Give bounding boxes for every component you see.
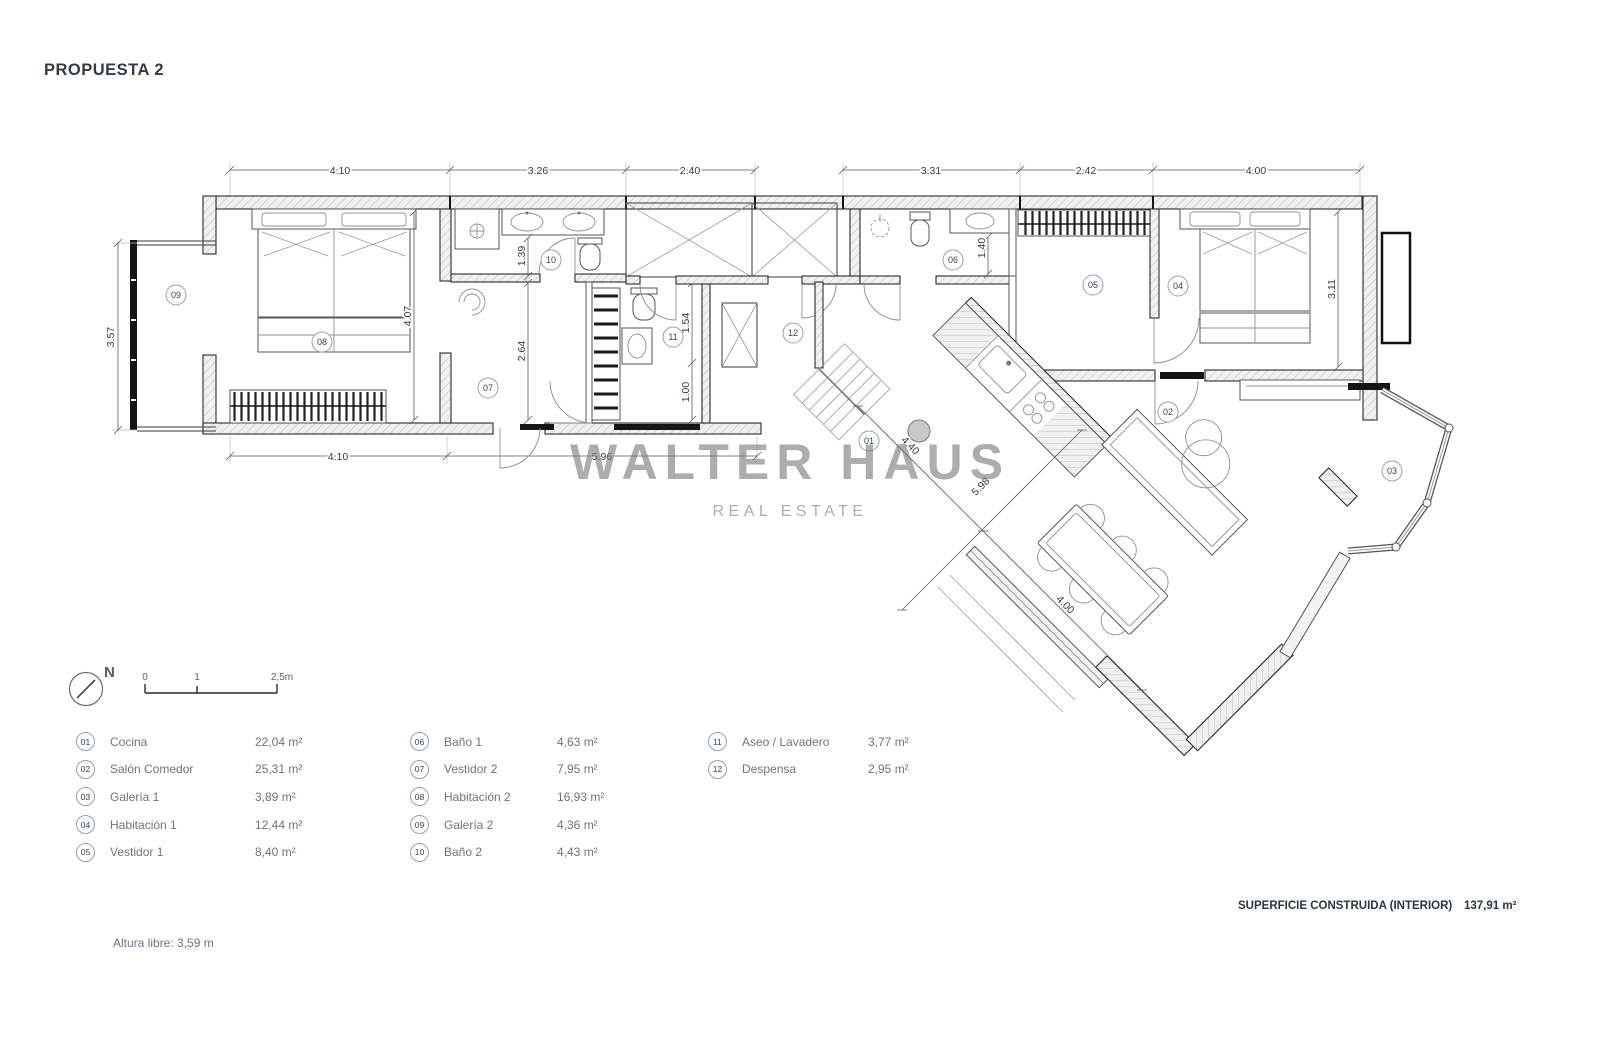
legend-row: 03Galería 13,89 m² bbox=[76, 783, 386, 811]
room-number-badge: 09 bbox=[410, 815, 429, 834]
label-aseo: 11 bbox=[668, 332, 677, 342]
ceiling-height-note: Altura libre: 3,59 m bbox=[113, 936, 214, 950]
label-cocina: 01 bbox=[864, 436, 874, 446]
legend-row: 12Despensa2,95 m² bbox=[708, 756, 998, 784]
room-name: Galería 2 bbox=[444, 818, 493, 832]
legend-column-3: 11Aseo / Lavadero3,77 m² 12Despensa2,95 … bbox=[708, 728, 998, 783]
page-title: PROPUESTA 2 bbox=[44, 61, 164, 80]
dim-top-3: 2.40 bbox=[680, 165, 701, 177]
label-despensa: 12 bbox=[788, 328, 798, 338]
room-name: Vestidor 1 bbox=[110, 845, 163, 859]
room-number-badge: 05 bbox=[76, 843, 95, 862]
shafts-and-despensa bbox=[626, 203, 860, 368]
room-area: 12,44 m² bbox=[255, 818, 302, 832]
scale-25: 2,5m bbox=[271, 672, 293, 683]
north-arrow: N bbox=[70, 664, 115, 706]
label-habitacion1: 04 bbox=[1173, 281, 1183, 291]
label-bano2: 10 bbox=[546, 255, 556, 265]
room-area: 4,43 m² bbox=[557, 845, 598, 859]
bano1-room: 1.40 bbox=[850, 209, 1016, 320]
room-area: 2,95 m² bbox=[868, 762, 909, 776]
room-number-badge: 04 bbox=[76, 815, 95, 834]
dim-aseo-upper: 1.54 bbox=[680, 313, 692, 334]
room-number-badge: 11 bbox=[708, 732, 727, 751]
room-name: Cocina bbox=[110, 735, 147, 749]
dim-bano1: 1.40 bbox=[976, 238, 988, 259]
dim-salon: 4.00 bbox=[1054, 593, 1077, 616]
legend-column-1: 01Cocina22,04 m² 02Salón Comedor25,31 m²… bbox=[76, 728, 386, 866]
label-habitacion2: 08 bbox=[317, 337, 327, 347]
room-area: 3,77 m² bbox=[868, 735, 909, 749]
entry-stairs bbox=[794, 344, 890, 440]
label-vestidor1: 05 bbox=[1088, 280, 1098, 290]
legend-row: 11Aseo / Lavadero3,77 m² bbox=[708, 728, 998, 756]
room-number-badge: 10 bbox=[410, 843, 429, 862]
vestidor2-room: 2.64 bbox=[459, 279, 592, 424]
legend-row: 04Habitación 112,44 m² bbox=[76, 811, 386, 839]
dim-bano2: 1.39 bbox=[516, 246, 528, 267]
label-vestidor2: 07 bbox=[483, 383, 493, 393]
aseo-lavadero-room: 1.54 1.00 bbox=[592, 279, 710, 424]
room-area: 3,89 m² bbox=[255, 790, 296, 804]
legend-row: 05Vestidor 18,40 m² bbox=[76, 838, 386, 866]
room-name: Habitación 2 bbox=[444, 790, 511, 804]
dim-habitacion1: 3.11 bbox=[1326, 279, 1338, 299]
galeria2-room: 3.57 bbox=[105, 239, 216, 434]
room-area: 25,31 m² bbox=[255, 762, 302, 776]
built-area-label: SUPERFICIE CONSTRUIDA (INTERIOR) bbox=[1238, 900, 1452, 912]
room-number-badge: 02 bbox=[76, 760, 95, 779]
dim-aseo-lower: 1.00 bbox=[680, 382, 692, 403]
scale-1: 1 bbox=[194, 672, 200, 683]
scale-bar: 0 1 2,5m bbox=[142, 672, 293, 693]
legend-row: 07Vestidor 27,95 m² bbox=[410, 756, 680, 784]
room-number-badge: 07 bbox=[410, 760, 429, 779]
room-number-badge: 06 bbox=[410, 732, 429, 751]
salon-comedor-area bbox=[938, 378, 1357, 756]
entry-door bbox=[500, 428, 540, 468]
dim-vestidor2: 2.64 bbox=[516, 341, 528, 362]
room-area: 4,63 m² bbox=[557, 735, 598, 749]
dimension-chain-top: 4.10 3.26 2.40 3.31 2.42 4.00 bbox=[226, 162, 1364, 196]
legend-column-2: 06Baño 14,63 m² 07Vestidor 27,95 m² 08Ha… bbox=[410, 728, 680, 866]
label-galeria2: 09 bbox=[171, 290, 181, 300]
dimension-chain-bottom: 4.10 5.96 bbox=[226, 436, 761, 463]
room-number-badge: 01 bbox=[76, 732, 95, 751]
dim-habitacion2: 4.07 bbox=[402, 306, 414, 327]
room-name: Baño 2 bbox=[444, 845, 482, 859]
north-label: N bbox=[104, 664, 115, 681]
dim-top-5: 2.42 bbox=[1076, 165, 1097, 177]
room-area: 22,04 m² bbox=[255, 735, 302, 749]
label-salon: 02 bbox=[1163, 407, 1173, 417]
dim-top-4: 3.31 bbox=[921, 165, 942, 177]
bano2-room: 1.39 bbox=[451, 209, 626, 282]
room-number-badge: 03 bbox=[76, 787, 95, 806]
dim-room8-bottom: 4.10 bbox=[328, 451, 349, 463]
dim-kitchen-b: 5.98 bbox=[969, 475, 992, 498]
dim-top-2: 3.26 bbox=[528, 165, 549, 177]
dim-hall-bottom: 5.96 bbox=[592, 451, 613, 463]
room-area: 7,95 m² bbox=[557, 762, 598, 776]
legend-row: 01Cocina22,04 m² bbox=[76, 728, 386, 756]
legend-row: 09Galería 24,36 m² bbox=[410, 811, 680, 839]
room-name: Vestidor 2 bbox=[444, 762, 497, 776]
dim-galeria2: 3.57 bbox=[105, 327, 117, 348]
room-number-badge: 12 bbox=[708, 760, 727, 779]
label-galeria1: 03 bbox=[1387, 466, 1397, 476]
room-name: Aseo / Lavadero bbox=[742, 735, 829, 749]
room-number-badge: 08 bbox=[410, 787, 429, 806]
legend-row: 06Baño 14,63 m² bbox=[410, 728, 680, 756]
room-name: Galería 1 bbox=[110, 790, 159, 804]
room-area: 8,40 m² bbox=[255, 845, 296, 859]
legend-row: 02Salón Comedor25,31 m² bbox=[76, 756, 386, 784]
built-area-value: 137,91 m² bbox=[1464, 900, 1516, 912]
legend-row: 10Baño 24,43 m² bbox=[410, 838, 680, 866]
floorplan-sheet: 4.10 3.26 2.40 3.31 2.42 4.00 3.57 bbox=[0, 0, 1600, 1059]
dim-top-6: 4.00 bbox=[1246, 165, 1267, 177]
room-name: Despensa bbox=[742, 762, 796, 776]
legend-row: 08Habitación 216,93 m² bbox=[410, 783, 680, 811]
room-name: Baño 1 bbox=[444, 735, 482, 749]
room-area: 16,93 m² bbox=[557, 790, 604, 804]
wardrobe-hangers-2 bbox=[1020, 211, 1148, 235]
label-bano1: 06 bbox=[948, 255, 958, 265]
habitacion2-room: 4.07 bbox=[230, 208, 451, 424]
room-name: Habitación 1 bbox=[110, 818, 177, 832]
scale-0: 0 bbox=[142, 672, 148, 683]
dim-top-1: 4.10 bbox=[330, 165, 351, 177]
room-area: 4,36 m² bbox=[557, 818, 598, 832]
room-name: Salón Comedor bbox=[110, 762, 193, 776]
